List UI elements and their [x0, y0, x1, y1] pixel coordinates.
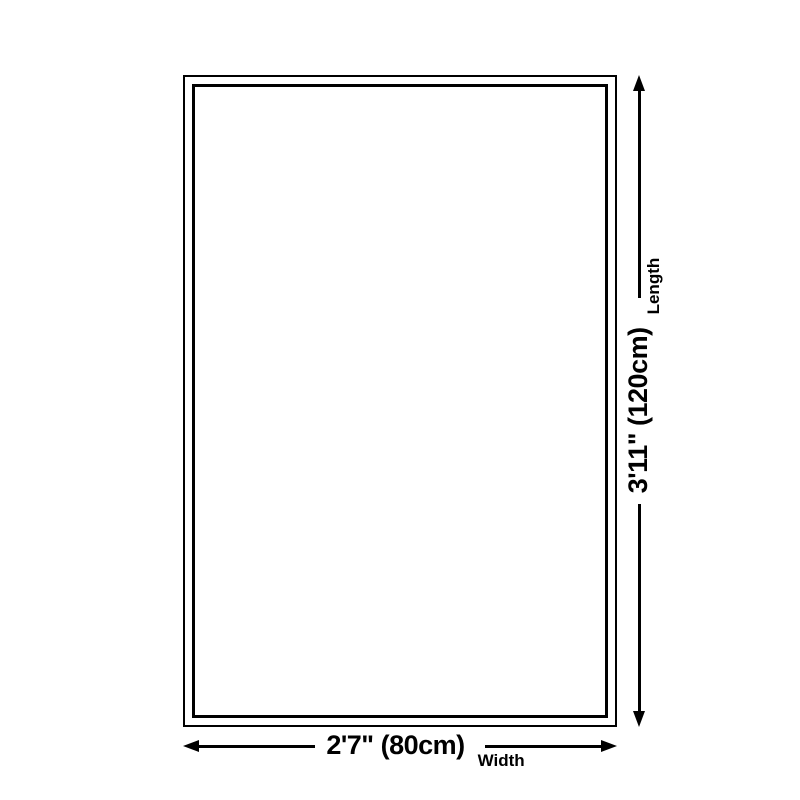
width-dimension: 2'7" (80cm) Width	[183, 724, 617, 768]
arrowhead-right-icon	[601, 740, 617, 752]
length-dimension: 3'11" (120cm) Length	[617, 75, 661, 727]
rug-size-diagram: 2'7" (80cm) Width 3'11" (120cm) Length	[0, 0, 800, 800]
width-dimension-line-right	[485, 745, 603, 748]
arrowhead-up-icon	[633, 75, 645, 91]
length-axis-label: Length	[645, 258, 664, 315]
width-axis-label: Width	[478, 752, 525, 771]
length-dimension-line-bottom	[638, 504, 641, 713]
length-dimension-line-top	[638, 89, 641, 298]
width-value: 2'7" (80cm)	[315, 731, 475, 761]
width-dimension-line-left	[197, 745, 315, 748]
length-value: 3'11" (120cm)	[624, 316, 654, 504]
arrowhead-down-icon	[633, 711, 645, 727]
rug-outline-inner	[192, 84, 608, 718]
rug-outline-outer	[183, 75, 617, 727]
